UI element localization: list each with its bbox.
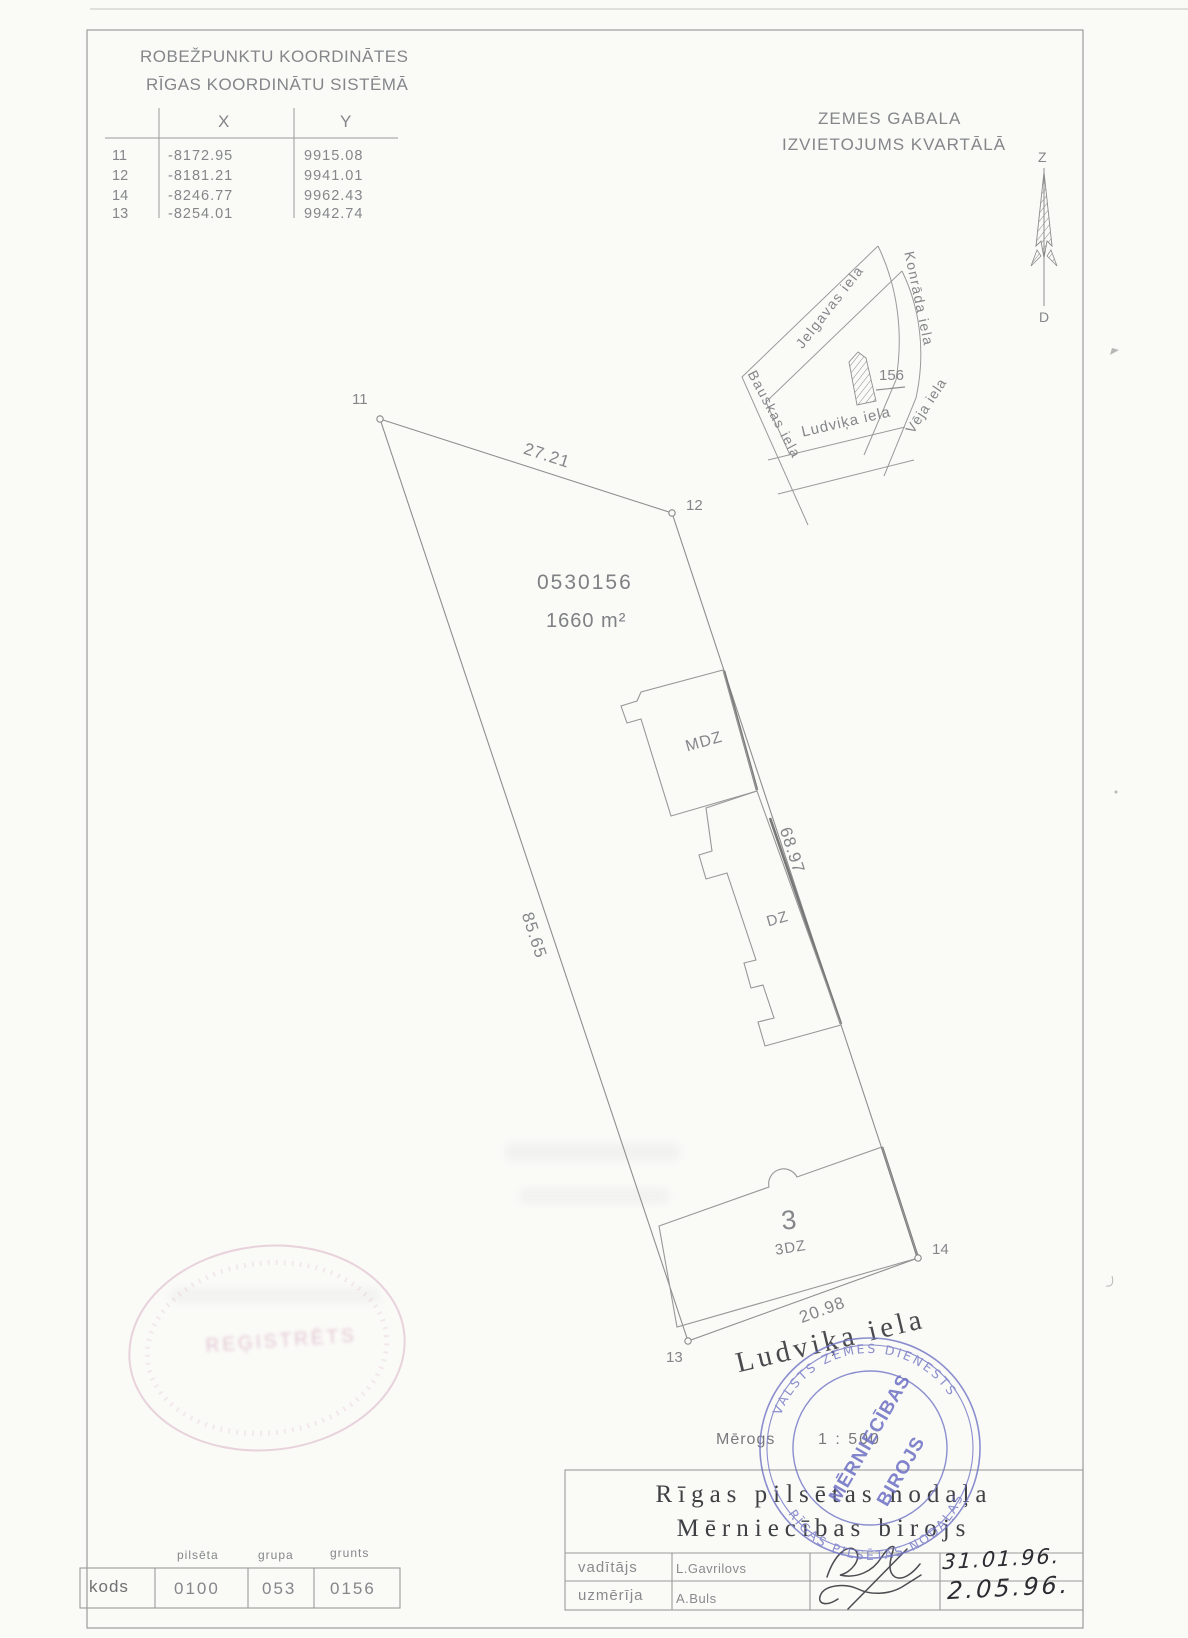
blue-stamp-ring-top-text: VALSTS ZEMES DIENESTS (763, 1331, 961, 1418)
stamps-layer: VALSTS ZEMES DIENESTS RĪGAS PILSĒTAS NOD… (0, 0, 1188, 1638)
scanned-survey-sheet: ROBEŽPUNKTU KOORDINĀTES RĪGAS KOORDINĀTU… (0, 0, 1188, 1638)
svg-text:VALSTS ZEMES DIENESTS: VALSTS ZEMES DIENESTS (763, 1331, 961, 1418)
